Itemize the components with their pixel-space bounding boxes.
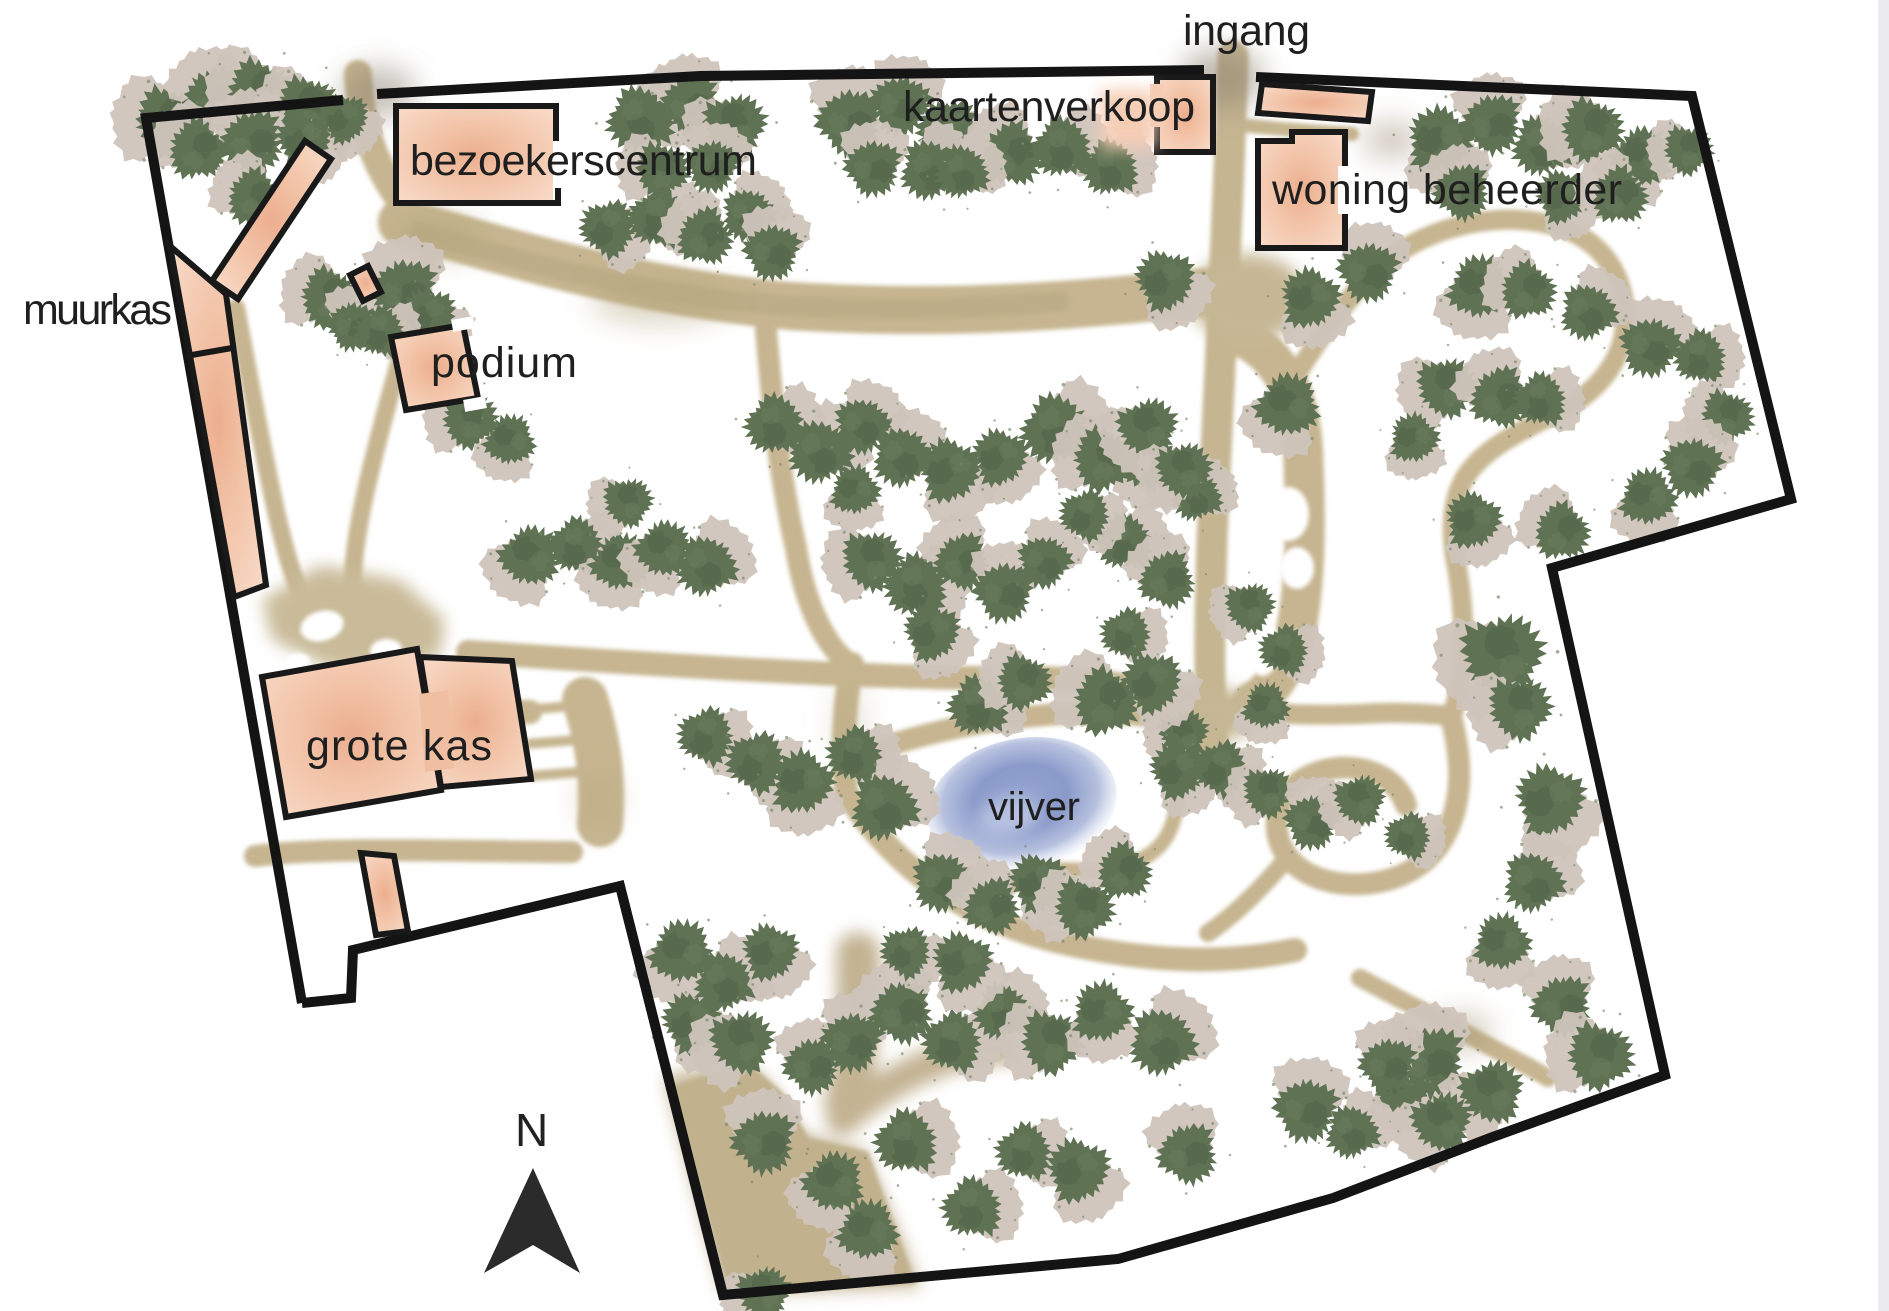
svg-text:bezoekerscentrum: bezoekerscentrum [410,137,757,185]
svg-text:vijver: vijver [988,785,1080,829]
svg-text:ingang: ingang [1183,7,1310,55]
svg-text:grote kas: grote kas [306,722,492,770]
svg-text:muurkas: muurkas [23,286,172,334]
svg-text:N: N [515,1104,548,1156]
svg-text:kaartenverkoop: kaartenverkoop [903,83,1195,131]
svg-text:woning beheerder: woning beheerder [1271,166,1622,214]
svg-text:podium: podium [431,339,577,387]
